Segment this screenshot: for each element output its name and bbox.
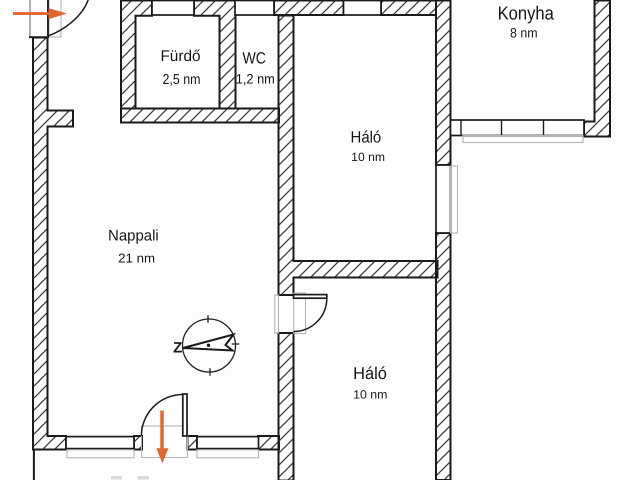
svg-text:2,5 nm: 2,5 nm	[163, 72, 201, 88]
svg-text:Nappali: Nappali	[108, 228, 159, 245]
svg-text:WC: WC	[243, 49, 267, 67]
svg-text:Háló: Háló	[353, 364, 387, 383]
svg-text:1,2 nm: 1,2 nm	[236, 72, 275, 87]
svg-text:8 nm: 8 nm	[510, 25, 538, 40]
svg-text:Z: Z	[173, 340, 182, 357]
svg-text:Háló: Háló	[351, 129, 382, 147]
svg-text:10 nm: 10 nm	[351, 150, 385, 164]
svg-text:Konyha: Konyha	[498, 4, 555, 25]
svg-text:21 nm: 21 nm	[118, 251, 155, 266]
svg-text:10 nm: 10 nm	[353, 388, 387, 402]
svg-text:Fürdő: Fürdő	[160, 48, 200, 65]
